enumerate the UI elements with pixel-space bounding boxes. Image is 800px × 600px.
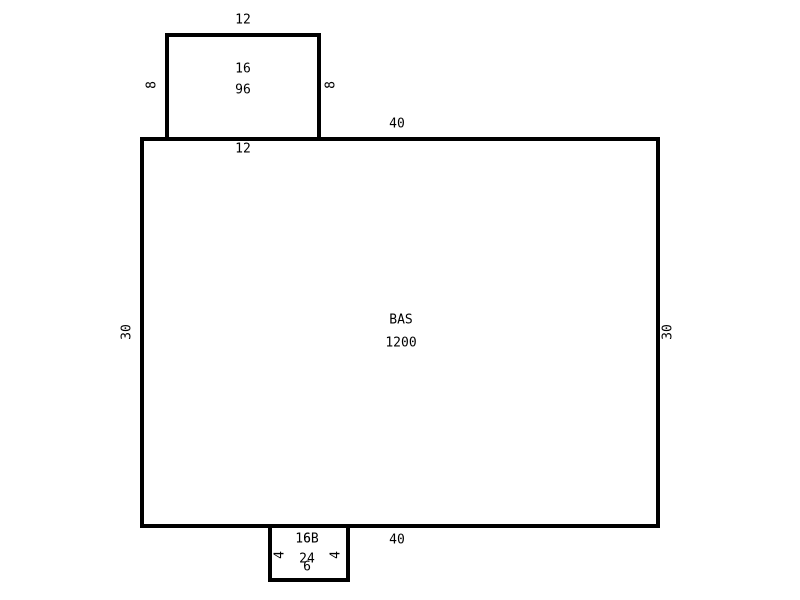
- area-code-label: BAS: [389, 314, 412, 327]
- dim-label-right: 4: [330, 551, 343, 559]
- dim-label-bottom: 6: [303, 561, 311, 574]
- dim-label-left: 30: [121, 324, 134, 340]
- dim-label-bottom: 12: [235, 143, 251, 156]
- area-sqft-label: 1200: [385, 337, 416, 350]
- area-code-label: 16: [235, 63, 251, 76]
- dim-label-right: 8: [325, 81, 338, 89]
- dim-label-bottom: 40: [389, 534, 405, 547]
- area-sqft-label: 96: [235, 84, 251, 97]
- dim-label-right: 30: [662, 324, 675, 340]
- dim-label-left: 4: [274, 551, 287, 559]
- dim-label-top: 12: [235, 14, 251, 27]
- dim-label-top: 40: [389, 118, 405, 131]
- dim-label-top: 6: [303, 533, 311, 546]
- sketch-canvas: 12 16 96 12 8 8 40 BAS 1200 40 30 30 16B…: [0, 0, 800, 600]
- base-area-outline[interactable]: [140, 137, 660, 528]
- dim-label-left: 8: [146, 81, 159, 89]
